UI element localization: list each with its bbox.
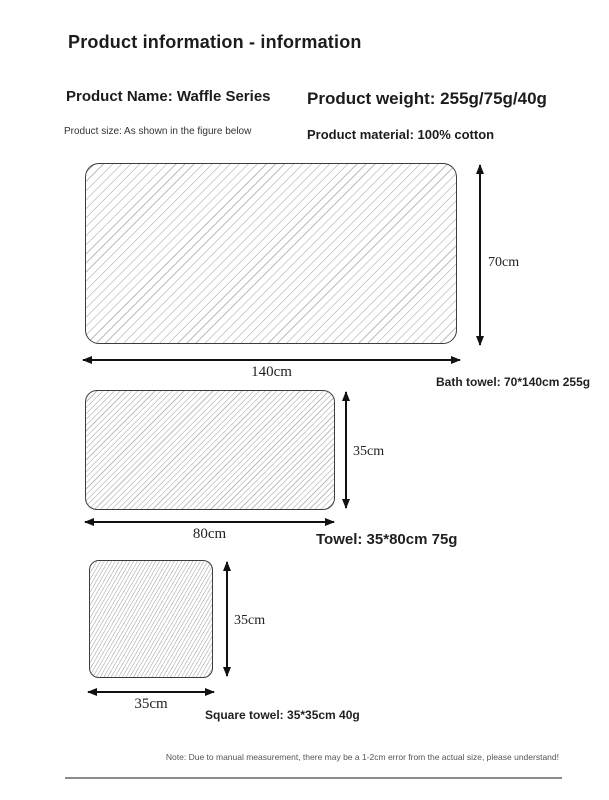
towel-width-arrow-icon — [85, 521, 334, 523]
product-weight-text: Product weight: 255g/75g/40g — [307, 89, 547, 109]
square-towel-height-arrow-icon — [226, 562, 228, 676]
product-info-page: Product information - information Produc… — [0, 0, 609, 800]
bath-towel-caption: Bath towel: 70*140cm 255g — [436, 375, 590, 389]
page-title: Product information - information — [68, 32, 362, 53]
towel-caption: Towel: 35*80cm 75g — [316, 531, 457, 548]
measurement-note: Note: Due to manual measurement, there m… — [166, 752, 559, 762]
product-material-text: Product material: 100% cotton — [307, 127, 494, 142]
towel-height-label: 35cm — [353, 444, 384, 460]
square-towel-width-label: 35cm — [88, 696, 214, 713]
product-size-text: Product size: As shown in the figure bel… — [64, 126, 251, 137]
towel-width-label: 80cm — [85, 526, 334, 543]
bath-towel-diagram — [85, 163, 457, 344]
bath-towel-width-label: 140cm — [83, 364, 460, 381]
square-towel-width-arrow-icon — [88, 691, 214, 693]
towel-height-arrow-icon — [345, 392, 347, 508]
bath-towel-height-arrow-icon — [479, 165, 481, 345]
square-towel-diagram — [89, 560, 213, 678]
towel-diagram — [85, 390, 335, 510]
square-towel-height-label: 35cm — [234, 613, 265, 629]
bath-towel-width-arrow-icon — [83, 359, 460, 361]
bottom-divider — [65, 777, 562, 779]
product-name-text: Product Name: Waffle Series — [66, 88, 271, 105]
bath-towel-height-label: 70cm — [488, 255, 519, 271]
square-towel-caption: Square towel: 35*35cm 40g — [205, 708, 360, 722]
